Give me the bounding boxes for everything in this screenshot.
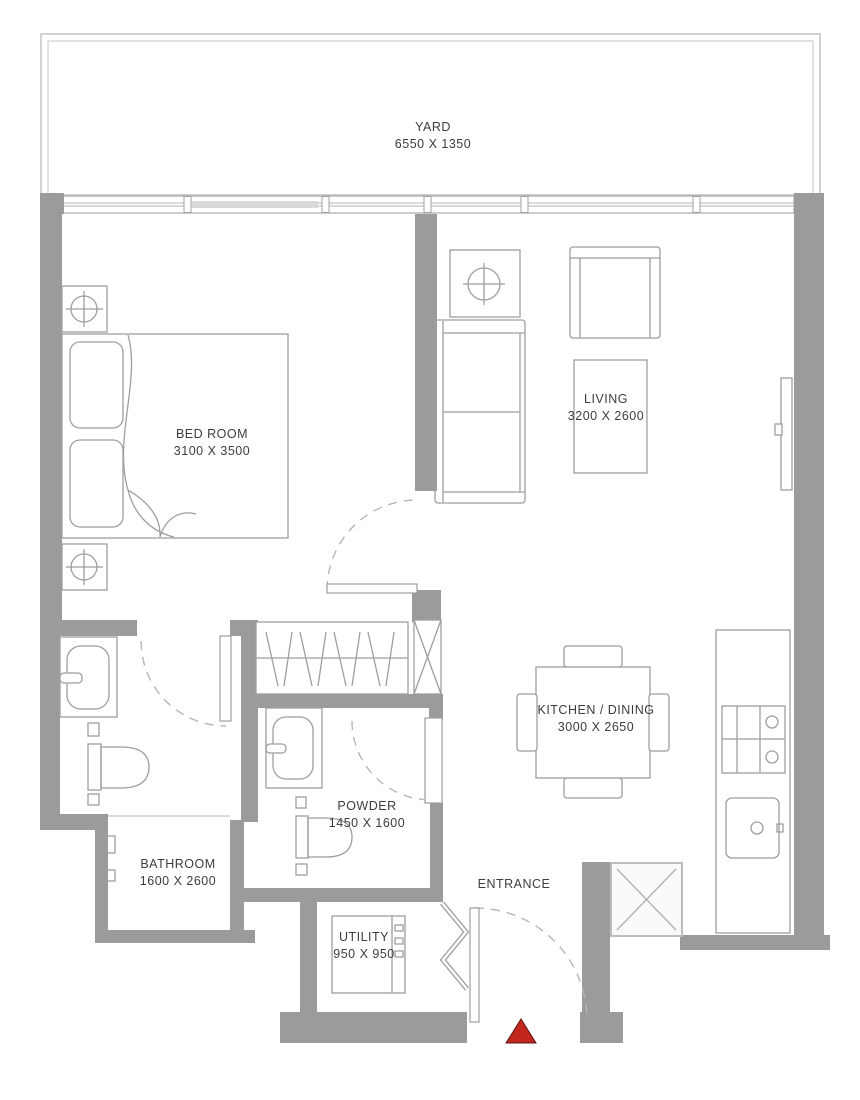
wall-utility-west [300, 902, 317, 1014]
duct-shaft-kitchen [611, 863, 682, 936]
room-label-yard: YARD 6550 X 1350 [395, 119, 471, 153]
room-label-kitchen-dining: KITCHEN / DINING 3000 X 2650 [537, 702, 654, 736]
wall-left [40, 196, 62, 636]
room-dimensions: 950 X 950 [333, 946, 395, 963]
door-leaf [327, 584, 417, 593]
wall-kitchen-south [680, 935, 830, 950]
wall-entry-south [580, 1012, 623, 1043]
room-dimensions: 3200 X 2600 [568, 408, 644, 425]
dining-chair [564, 646, 622, 667]
wall-fixture [88, 723, 99, 736]
room-label-living: LIVING 3200 X 2600 [568, 391, 644, 425]
window-band [62, 196, 794, 213]
faucet-icon [60, 673, 82, 683]
door-swing-arc [475, 908, 587, 1020]
room-dimensions: 3100 X 3500 [174, 443, 250, 460]
entrance-door [470, 908, 587, 1022]
armchair [570, 247, 660, 338]
dining-chair [517, 694, 537, 751]
room-label-bathroom: BATHROOM 1600 X 2600 [140, 856, 216, 890]
floor-plan: YARD 6550 X 1350 BED ROOM 3100 X 3500 LI… [0, 0, 860, 1100]
wall-bedroom-living-divider [415, 214, 437, 491]
sofa [435, 320, 525, 503]
wall-mid-divider-low [230, 820, 244, 943]
room-dimensions: 1600 X 2600 [140, 873, 216, 890]
radiator [775, 378, 792, 490]
wall-fixture [88, 794, 99, 805]
bedside-table-top [62, 286, 107, 332]
bathroom-toilet [88, 723, 149, 805]
room-name: BATHROOM [140, 856, 216, 873]
utility-bifold-door [442, 903, 467, 989]
yard-outline [41, 34, 820, 195]
wall-bath-jog [40, 814, 108, 830]
wall-fixture [296, 797, 306, 808]
wall-bath-west [40, 620, 60, 820]
room-name: YARD [395, 119, 471, 136]
room-label-bedroom: BED ROOM 3100 X 3500 [174, 426, 250, 460]
wall-fixture [296, 864, 307, 875]
room-name: BED ROOM [174, 426, 250, 443]
faucet-icon [266, 744, 286, 753]
wall-powder-east-bottom [430, 803, 443, 890]
walls [40, 193, 830, 1043]
dining-chair [564, 778, 622, 798]
room-label-powder: POWDER 1450 X 1600 [329, 798, 405, 832]
door-swing-arc [352, 721, 431, 800]
powder-washbasin [266, 708, 322, 788]
wall-entry-east [582, 862, 610, 1014]
room-label-entrance: ENTRANCE [478, 876, 551, 893]
floor-plan-drawing [0, 0, 860, 1100]
room-dimensions: 3000 X 2650 [537, 719, 654, 736]
room-name: ENTRANCE [478, 876, 551, 893]
side-table [450, 250, 520, 317]
wall-divider-foot [412, 590, 441, 622]
glass-panel [192, 201, 318, 208]
pillow [70, 440, 123, 527]
powder-door [352, 718, 442, 803]
bathroom-door [141, 636, 231, 726]
door-swing-arc [141, 641, 226, 726]
wall-utility-south [280, 1012, 467, 1043]
bedside-table-bottom [62, 544, 107, 590]
wall-powder-south [244, 888, 443, 902]
door-swing-arc [327, 500, 417, 590]
bedroom-door [327, 500, 417, 593]
room-name: POWDER [329, 798, 405, 815]
room-name: UTILITY [333, 929, 395, 946]
kitchen-counter [716, 630, 790, 933]
wardrobe [256, 622, 408, 694]
pillow [70, 342, 123, 428]
door-leaf [470, 908, 479, 1022]
duct-shaft-center [414, 620, 441, 694]
entrance-marker-icon [506, 1019, 536, 1043]
door-leaf [220, 636, 231, 721]
bathroom-washbasin [60, 637, 117, 717]
wall-powder-north [241, 694, 443, 708]
room-dimensions: 6550 X 1350 [395, 136, 471, 153]
wall-right [794, 196, 824, 950]
room-dimensions: 1450 X 1600 [329, 815, 405, 832]
room-name: KITCHEN / DINING [537, 702, 654, 719]
room-label-utility: UTILITY 950 X 950 [333, 929, 395, 963]
door-leaf [425, 718, 442, 803]
room-name: LIVING [568, 391, 644, 408]
